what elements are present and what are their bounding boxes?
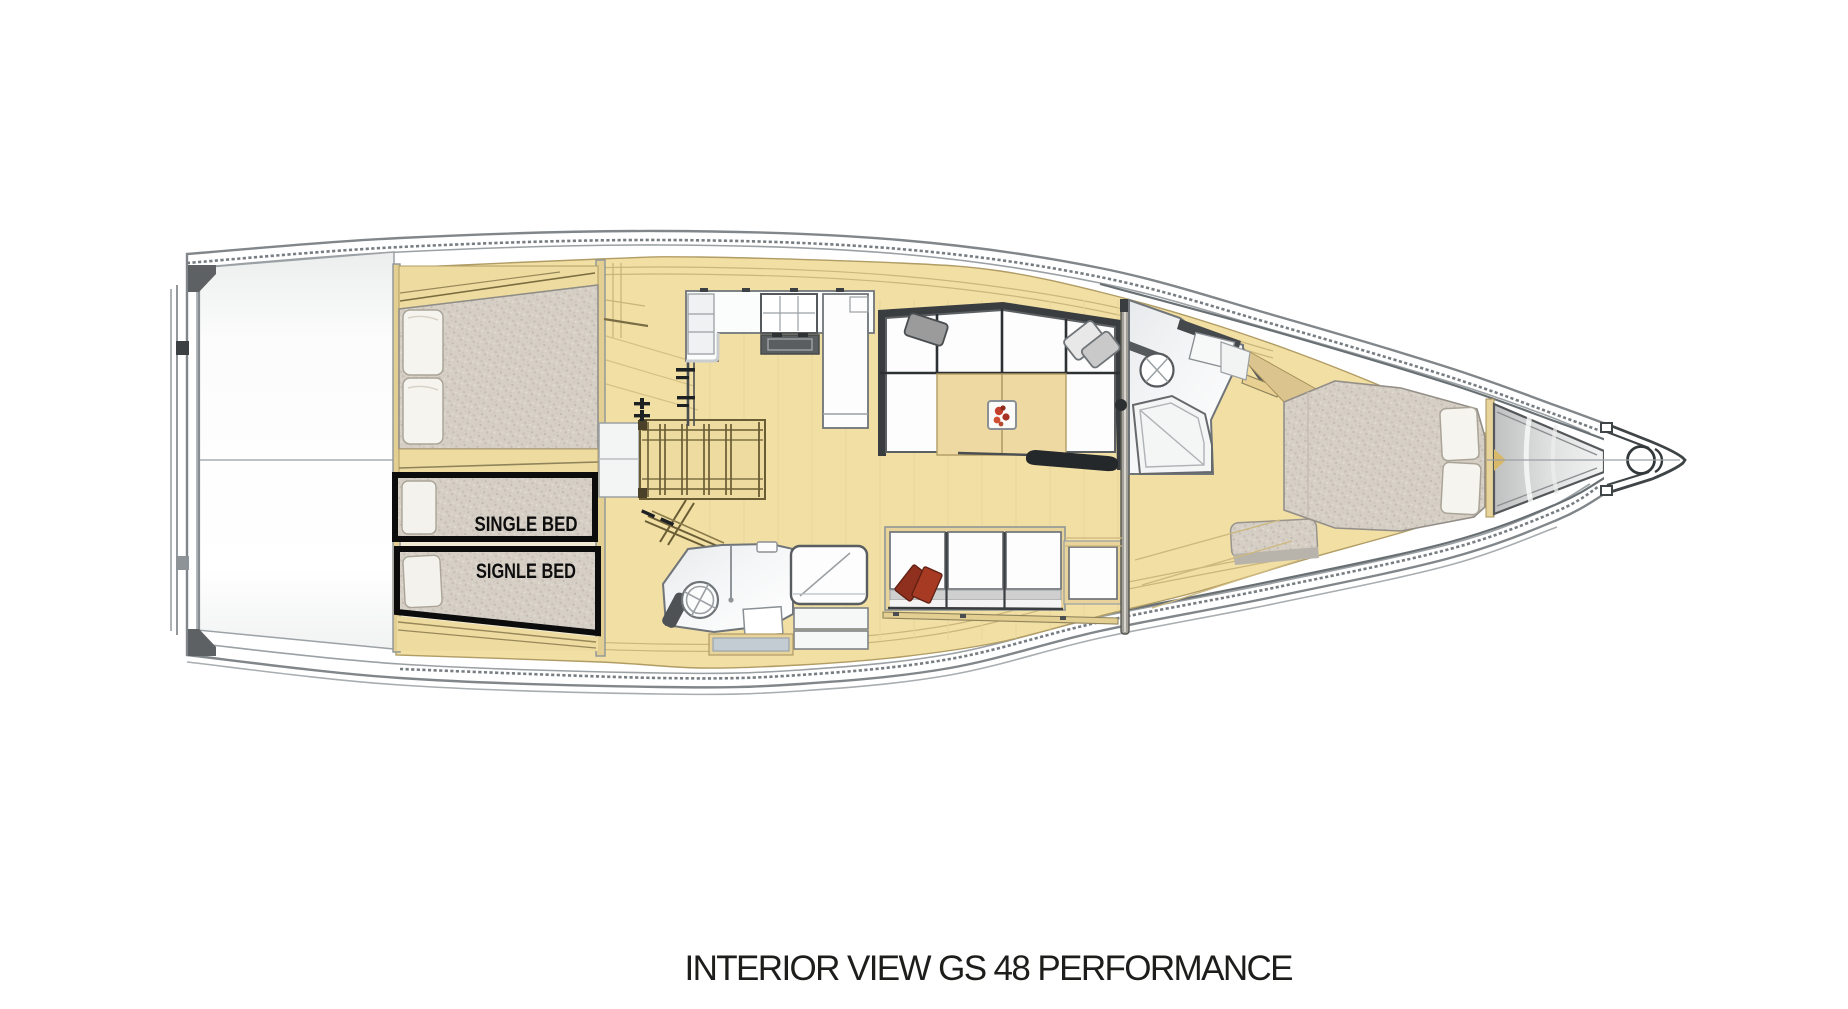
svg-text:SINGLE BED: SINGLE BED [475, 513, 578, 536]
svg-text:INTERIOR VIEW GS 48 PERFORMANC: INTERIOR VIEW GS 48 PERFORMANCE [685, 949, 1294, 988]
svg-text:SIGNLE BED: SIGNLE BED [476, 560, 576, 583]
